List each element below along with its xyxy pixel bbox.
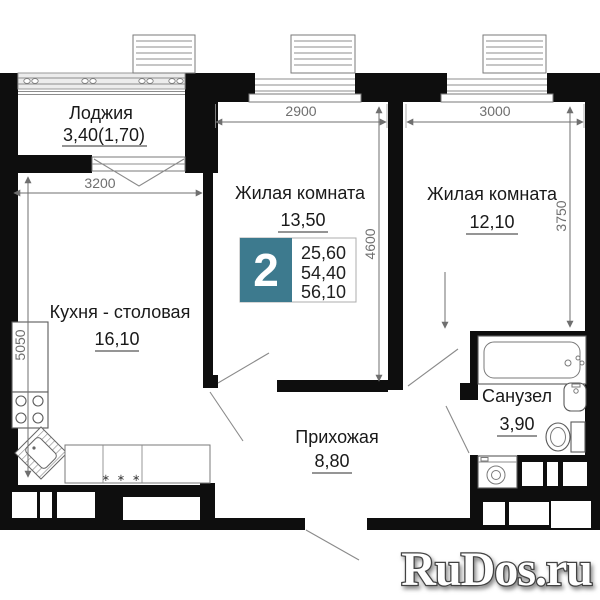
area-hallway: 8,80 — [314, 451, 349, 471]
window-slot — [40, 492, 52, 518]
shaft-slot — [509, 502, 549, 525]
door-room2 — [408, 349, 458, 386]
washing-machine-icon — [478, 456, 517, 488]
apartment-badge: 2 25,60 54,40 56,10 — [240, 238, 356, 302]
door-kitchen — [210, 392, 243, 441]
radiator-icon — [133, 35, 195, 73]
watermark: RuDos.ru — [401, 543, 592, 596]
washbasin-icon — [564, 383, 586, 411]
badge-area-living: 25,60 — [301, 243, 346, 263]
dim-2900: 2900 — [285, 103, 316, 119]
wall-kitchen-room1 — [203, 173, 213, 375]
dim-3200: 3200 — [84, 175, 115, 191]
label-loggia: Лоджия — [69, 103, 133, 123]
counter-marks: ∗ ∗ ∗ — [102, 473, 143, 484]
dim-4600: 4600 — [362, 228, 378, 259]
shaft-slot — [563, 462, 587, 486]
stove-icon — [12, 392, 48, 428]
shaft-slot — [547, 462, 558, 486]
shaft-slot — [522, 462, 543, 486]
loggia-glazing — [18, 73, 185, 95]
wall-hall-bottom-right — [367, 518, 470, 530]
window-slot — [123, 497, 200, 520]
wall-room1-room2 — [388, 102, 403, 390]
wall-hall-bottom-left — [203, 518, 305, 530]
radiator-icon — [291, 35, 355, 73]
area-living1: 13,50 — [280, 210, 325, 230]
toilet-icon — [546, 422, 585, 452]
bathtub-icon — [478, 336, 586, 384]
wall-top-2 — [355, 73, 447, 102]
window-room1 — [249, 73, 361, 102]
area-bathroom: 3,90 — [499, 414, 534, 434]
door-entrance — [306, 530, 359, 560]
badge-rooms-count: 2 — [253, 244, 279, 296]
floor-plan-drawing: ∗ ∗ ∗ — [0, 0, 600, 600]
floor-plan-page: ∗ ∗ ∗ — [0, 0, 600, 600]
wall-kitchen-nub — [203, 375, 218, 388]
shaft-slot — [551, 501, 591, 528]
dim-3000: 3000 — [479, 103, 510, 119]
dim-5050: 5050 — [12, 329, 28, 360]
wall-room1-bottom — [277, 380, 388, 392]
wall-loggia-bottom — [0, 155, 92, 173]
label-living2: Жилая комната — [427, 184, 558, 204]
badge-area-main: 54,40 — [301, 263, 346, 283]
corner-sink-icon — [15, 427, 67, 479]
shaft-slot — [483, 502, 505, 525]
dim-3750: 3750 — [553, 200, 569, 231]
door-bathroom — [446, 406, 469, 453]
label-kitchen: Кухня - столовая — [50, 302, 191, 322]
area-loggia: 3,40(1,70) — [63, 125, 145, 145]
wall-bath-left-upper — [470, 331, 478, 383]
wall-top-1 — [195, 73, 255, 102]
window-slot — [57, 492, 95, 518]
radiator-icon — [483, 35, 546, 73]
kitchen-worktop-icon: ∗ ∗ ∗ — [65, 445, 210, 484]
label-living1: Жилая комната — [235, 183, 366, 203]
window-room2 — [441, 73, 553, 102]
door-room1 — [218, 353, 269, 383]
area-living2: 12,10 — [469, 212, 514, 232]
window-slot — [12, 492, 37, 518]
area-kitchen: 16,10 — [94, 329, 139, 349]
label-bathroom: Санузел — [482, 386, 552, 406]
wall-left-outer — [0, 73, 18, 530]
label-hallway: Прихожая — [295, 427, 378, 447]
wall-bath-left-nub — [460, 383, 478, 400]
badge-area-total: 56,10 — [301, 282, 346, 302]
